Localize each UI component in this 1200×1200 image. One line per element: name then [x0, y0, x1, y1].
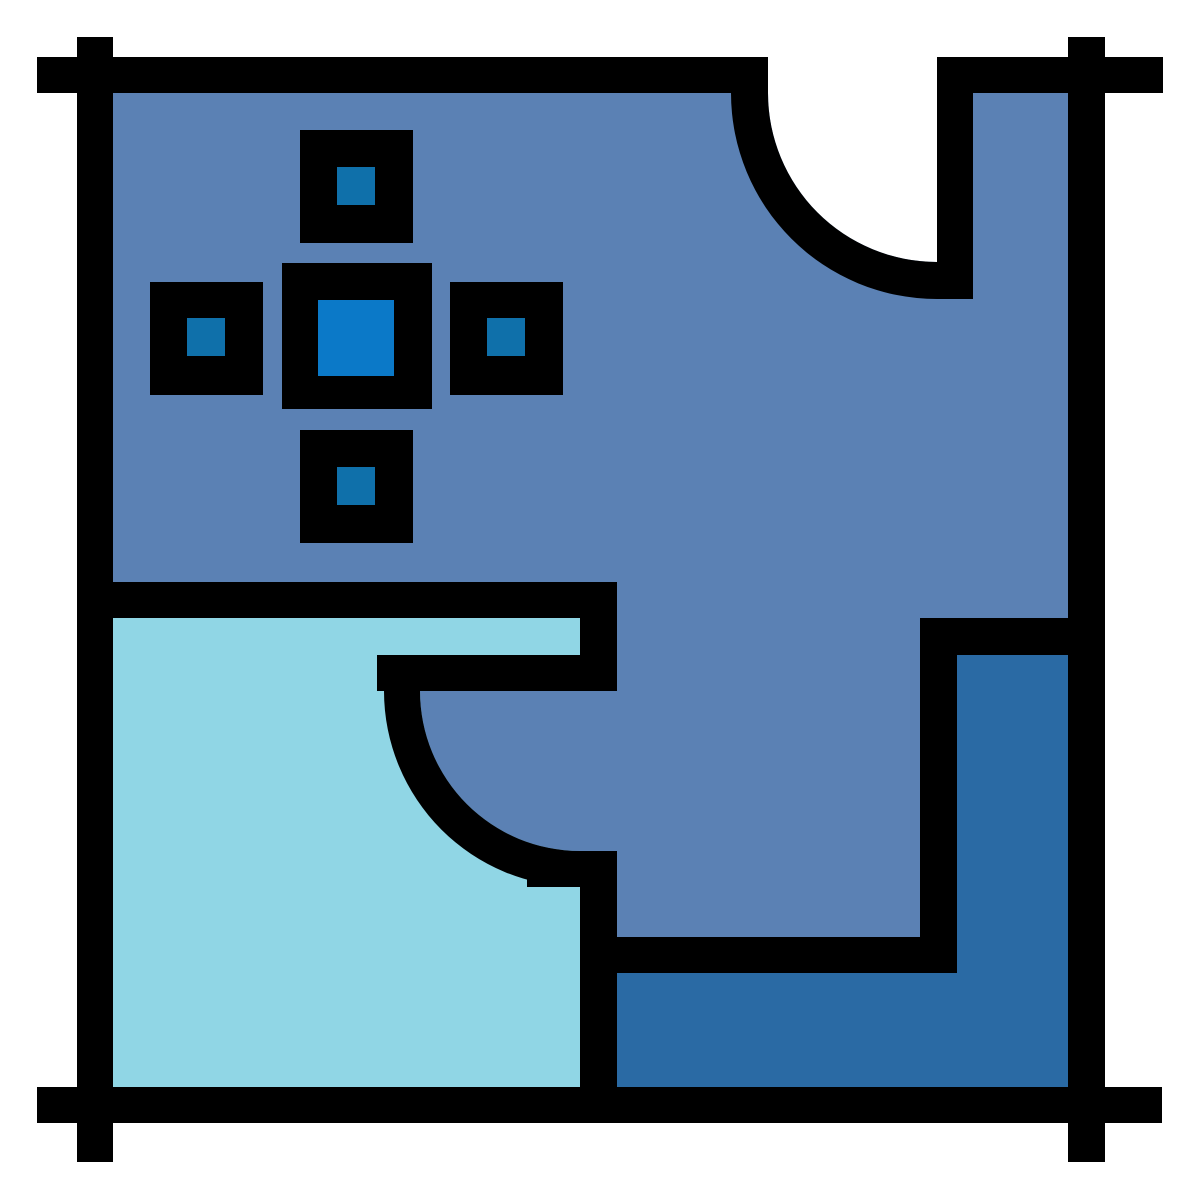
room-main-mid-fill: [580, 618, 920, 937]
marker-top-dot: [337, 167, 375, 205]
marker-right-dot: [487, 318, 525, 356]
marker-left-dot: [187, 318, 225, 356]
wall-step-horizontal: [617, 937, 957, 973]
wall-right: [1068, 37, 1105, 1162]
wall-divider-vertical-right: [920, 618, 957, 973]
marker-center-dot: [318, 300, 394, 376]
floor-plan-icon: [0, 0, 1200, 1200]
wall-bottom: [37, 1087, 1162, 1123]
wall-divider-horizontal-left: [113, 582, 617, 618]
wall-divider-vertical-upper: [580, 582, 617, 691]
wall-top-right-segment: [937, 57, 1163, 93]
wall-left: [77, 37, 113, 1162]
wall-top-left-segment: [37, 57, 768, 93]
floor-plan-drawing: [0, 0, 1200, 1200]
marker-bottom-dot: [337, 467, 375, 505]
room-lower-right-horizontal-fill: [617, 973, 1068, 1087]
wall-door-stub-upper: [937, 57, 973, 299]
